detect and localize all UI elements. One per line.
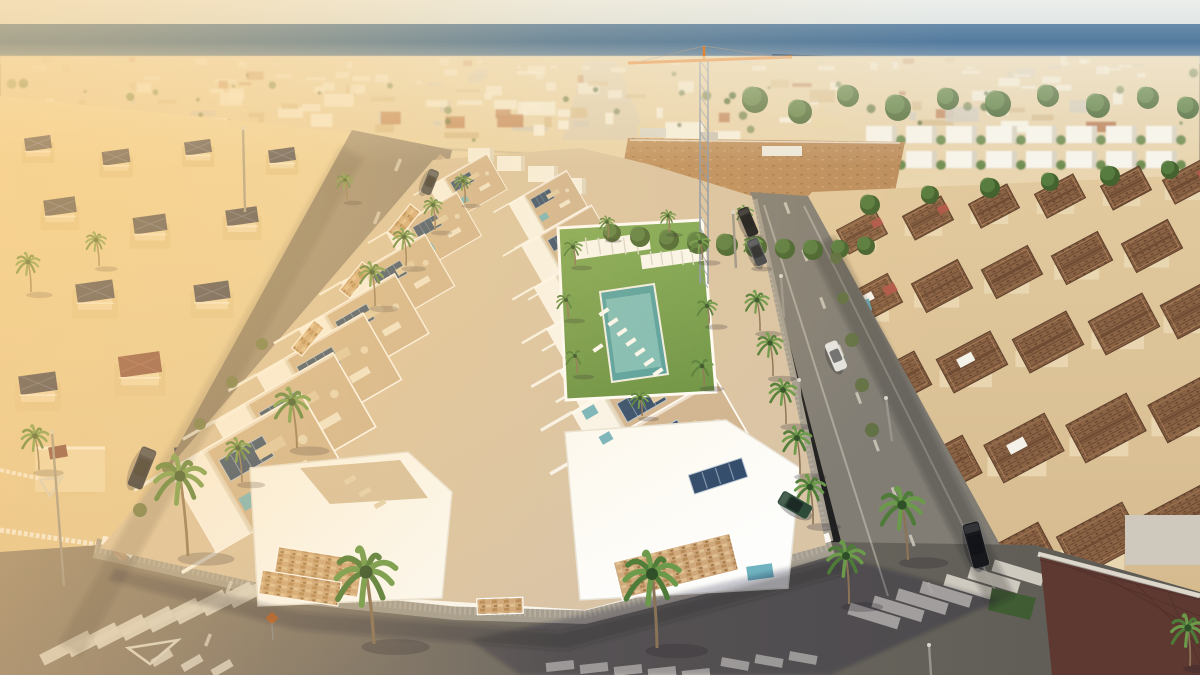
aerial-photo-canvas (0, 0, 1200, 675)
sun-glow (0, 0, 1200, 675)
aerial-photo-coastal-residential-development (0, 0, 1200, 675)
